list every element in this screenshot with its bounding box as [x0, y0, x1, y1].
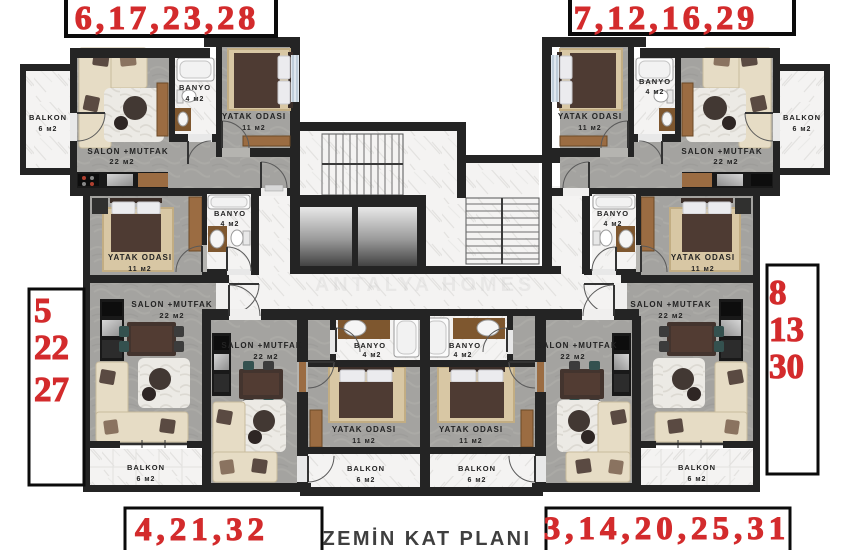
svg-text:3,14,20,25,31: 3,14,20,25,31 — [544, 511, 791, 547]
svg-text:4 м2: 4 м2 — [454, 352, 473, 359]
svg-text:SALON +MUTFAK: SALON +MUTFAK — [87, 147, 168, 156]
svg-text:6 м2: 6 м2 — [688, 476, 707, 483]
svg-text:5: 5 — [34, 291, 52, 330]
svg-text:BALKON: BALKON — [347, 464, 385, 473]
svg-text:SALON +MUTFAK: SALON +MUTFAK — [681, 147, 762, 156]
svg-text:BALKON: BALKON — [458, 464, 496, 473]
svg-text:6,17,23,28: 6,17,23,28 — [75, 0, 260, 37]
svg-text:BANYO: BANYO — [214, 209, 246, 218]
svg-text:11 м2: 11 м2 — [242, 125, 265, 132]
svg-text:SALON +MUTFAK: SALON +MUTFAK — [131, 300, 212, 309]
svg-text:BANYO: BANYO — [639, 77, 671, 86]
svg-text:BALKON: BALKON — [127, 463, 165, 472]
svg-text:YATAK ODASI: YATAK ODASI — [108, 253, 172, 262]
svg-text:YATAK ODASI: YATAK ODASI — [558, 112, 622, 121]
svg-text:4 м2: 4 м2 — [186, 96, 205, 103]
svg-text:11 м2: 11 м2 — [128, 266, 151, 273]
svg-text:BALKON: BALKON — [783, 113, 821, 122]
svg-text:22 м2: 22 м2 — [560, 352, 585, 361]
svg-text:11 м2: 11 м2 — [352, 438, 375, 445]
svg-text:4 м2: 4 м2 — [363, 352, 382, 359]
svg-text:22 м2: 22 м2 — [109, 157, 134, 166]
svg-text:YATAK ODASI: YATAK ODASI — [332, 425, 396, 434]
svg-text:7,12,16,29: 7,12,16,29 — [574, 0, 759, 37]
svg-text:6 м2: 6 м2 — [793, 126, 812, 133]
svg-text:BALKON: BALKON — [29, 113, 67, 122]
svg-text:6 м2: 6 м2 — [357, 477, 376, 484]
svg-text:4 м2: 4 м2 — [604, 221, 623, 228]
svg-text:ANTALYA HOMES: ANTALYA HOMES — [315, 274, 536, 296]
svg-text:YATAK ODASI: YATAK ODASI — [222, 112, 286, 121]
svg-text:27: 27 — [34, 370, 69, 409]
svg-text:22 м2: 22 м2 — [713, 157, 738, 166]
svg-text:8: 8 — [769, 273, 787, 312]
svg-text:BANYO: BANYO — [354, 341, 386, 350]
svg-text:22 м2: 22 м2 — [253, 352, 278, 361]
svg-text:SALON +MUTFAK: SALON +MUTFAK — [221, 341, 302, 350]
svg-text:11 м2: 11 м2 — [459, 438, 482, 445]
svg-text:22 м2: 22 м2 — [159, 311, 184, 320]
svg-text:30: 30 — [769, 347, 804, 386]
svg-text:BALKON: BALKON — [678, 463, 716, 472]
svg-text:SALON +MUTFAK: SALON +MUTFAK — [536, 341, 617, 350]
svg-text:22: 22 — [34, 328, 69, 367]
svg-text:4,21,32: 4,21,32 — [135, 512, 269, 548]
svg-text:BANYO: BANYO — [597, 209, 629, 218]
svg-text:ZEMİN KAT PLANI: ZEMİN KAT PLANI — [323, 527, 532, 550]
svg-text:SALON +MUTFAK: SALON +MUTFAK — [630, 300, 711, 309]
svg-text:4 м2: 4 м2 — [221, 221, 240, 228]
svg-text:11 м2: 11 м2 — [578, 125, 601, 132]
svg-text:13: 13 — [769, 310, 804, 349]
svg-text:BANYO: BANYO — [449, 341, 481, 350]
svg-text:BANYO: BANYO — [179, 83, 211, 92]
svg-text:6 м2: 6 м2 — [39, 126, 58, 133]
svg-text:6 м2: 6 м2 — [468, 477, 487, 484]
svg-text:YATAK ODASI: YATAK ODASI — [439, 425, 503, 434]
svg-text:6 м2: 6 м2 — [137, 476, 156, 483]
svg-text:11 м2: 11 м2 — [691, 266, 714, 273]
svg-text:YATAK ODASI: YATAK ODASI — [671, 253, 735, 262]
svg-text:4 м2: 4 м2 — [646, 89, 665, 96]
svg-text:22 м2: 22 м2 — [658, 311, 683, 320]
